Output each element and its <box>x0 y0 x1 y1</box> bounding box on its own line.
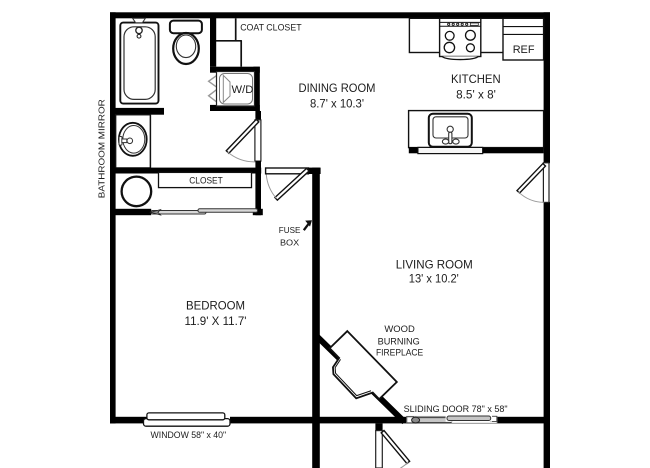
svg-text:KITCHEN: KITCHEN <box>451 72 501 86</box>
svg-text:11.9' X 11.7': 11.9' X 11.7' <box>185 314 247 328</box>
svg-text:WOOD: WOOD <box>384 324 415 334</box>
svg-text:WINDOW 58" x 40": WINDOW 58" x 40" <box>151 430 227 440</box>
svg-text:BOX: BOX <box>280 237 299 247</box>
svg-text:BATHROOM MIRROR: BATHROOM MIRROR <box>96 99 106 198</box>
svg-text:DINING ROOM: DINING ROOM <box>299 81 376 95</box>
svg-text:8.5' x 8': 8.5' x 8' <box>456 88 496 102</box>
svg-text:W/D: W/D <box>232 84 254 96</box>
svg-text:CLOSET: CLOSET <box>189 175 223 185</box>
svg-text:LIVING ROOM: LIVING ROOM <box>396 257 473 271</box>
svg-text:8.7' x 10.3': 8.7' x 10.3' <box>310 96 364 110</box>
svg-text:REF: REF <box>513 44 535 56</box>
svg-text:SLIDING DOOR 78" x 58": SLIDING DOOR 78" x 58" <box>404 404 508 414</box>
svg-text:13' x 10.2': 13' x 10.2' <box>409 271 459 285</box>
svg-text:FUSE: FUSE <box>279 225 301 235</box>
svg-text:BURNING: BURNING <box>378 336 420 346</box>
svg-text:BEDROOM: BEDROOM <box>186 298 245 312</box>
svg-text:FIREPLACE: FIREPLACE <box>376 348 423 358</box>
svg-text:COAT CLOSET: COAT CLOSET <box>240 23 302 34</box>
